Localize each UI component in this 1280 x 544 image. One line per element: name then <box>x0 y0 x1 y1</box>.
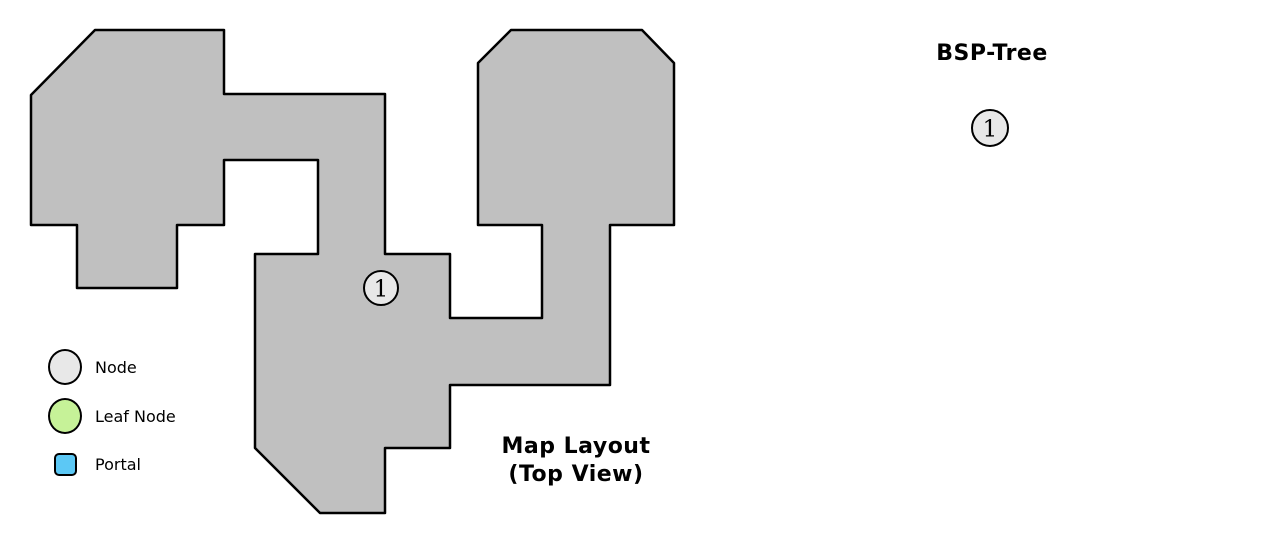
legend-label-node: Node <box>95 358 137 377</box>
map-node-marker-1-label: 1 <box>374 276 389 302</box>
legend-item-node: Node <box>48 348 137 386</box>
tree-node-1-label: 1 <box>983 116 998 142</box>
portal-square-icon <box>54 453 77 476</box>
leaf-node-circle-icon <box>48 398 82 434</box>
map-layout-label: Map Layout (Top View) <box>502 433 651 489</box>
node-marker-box <box>48 348 82 386</box>
bsp-tree-title: BSP-Tree <box>936 41 1048 66</box>
map-layout-label-line2: (Top View) <box>502 461 651 489</box>
leaf-node-marker-box <box>48 397 82 435</box>
legend-label-portal: Portal <box>95 455 141 474</box>
legend-label-leaf-node: Leaf Node <box>95 407 176 426</box>
portal-marker-box <box>48 445 82 483</box>
map-layout-label-line1: Map Layout <box>502 433 651 461</box>
legend-item-portal: Portal <box>48 445 141 483</box>
diagram-canvas: 11 Node Leaf Node Portal Map Layout (Top… <box>0 0 1280 544</box>
legend-item-leaf-node: Leaf Node <box>48 397 176 435</box>
node-circle-icon <box>48 349 82 385</box>
